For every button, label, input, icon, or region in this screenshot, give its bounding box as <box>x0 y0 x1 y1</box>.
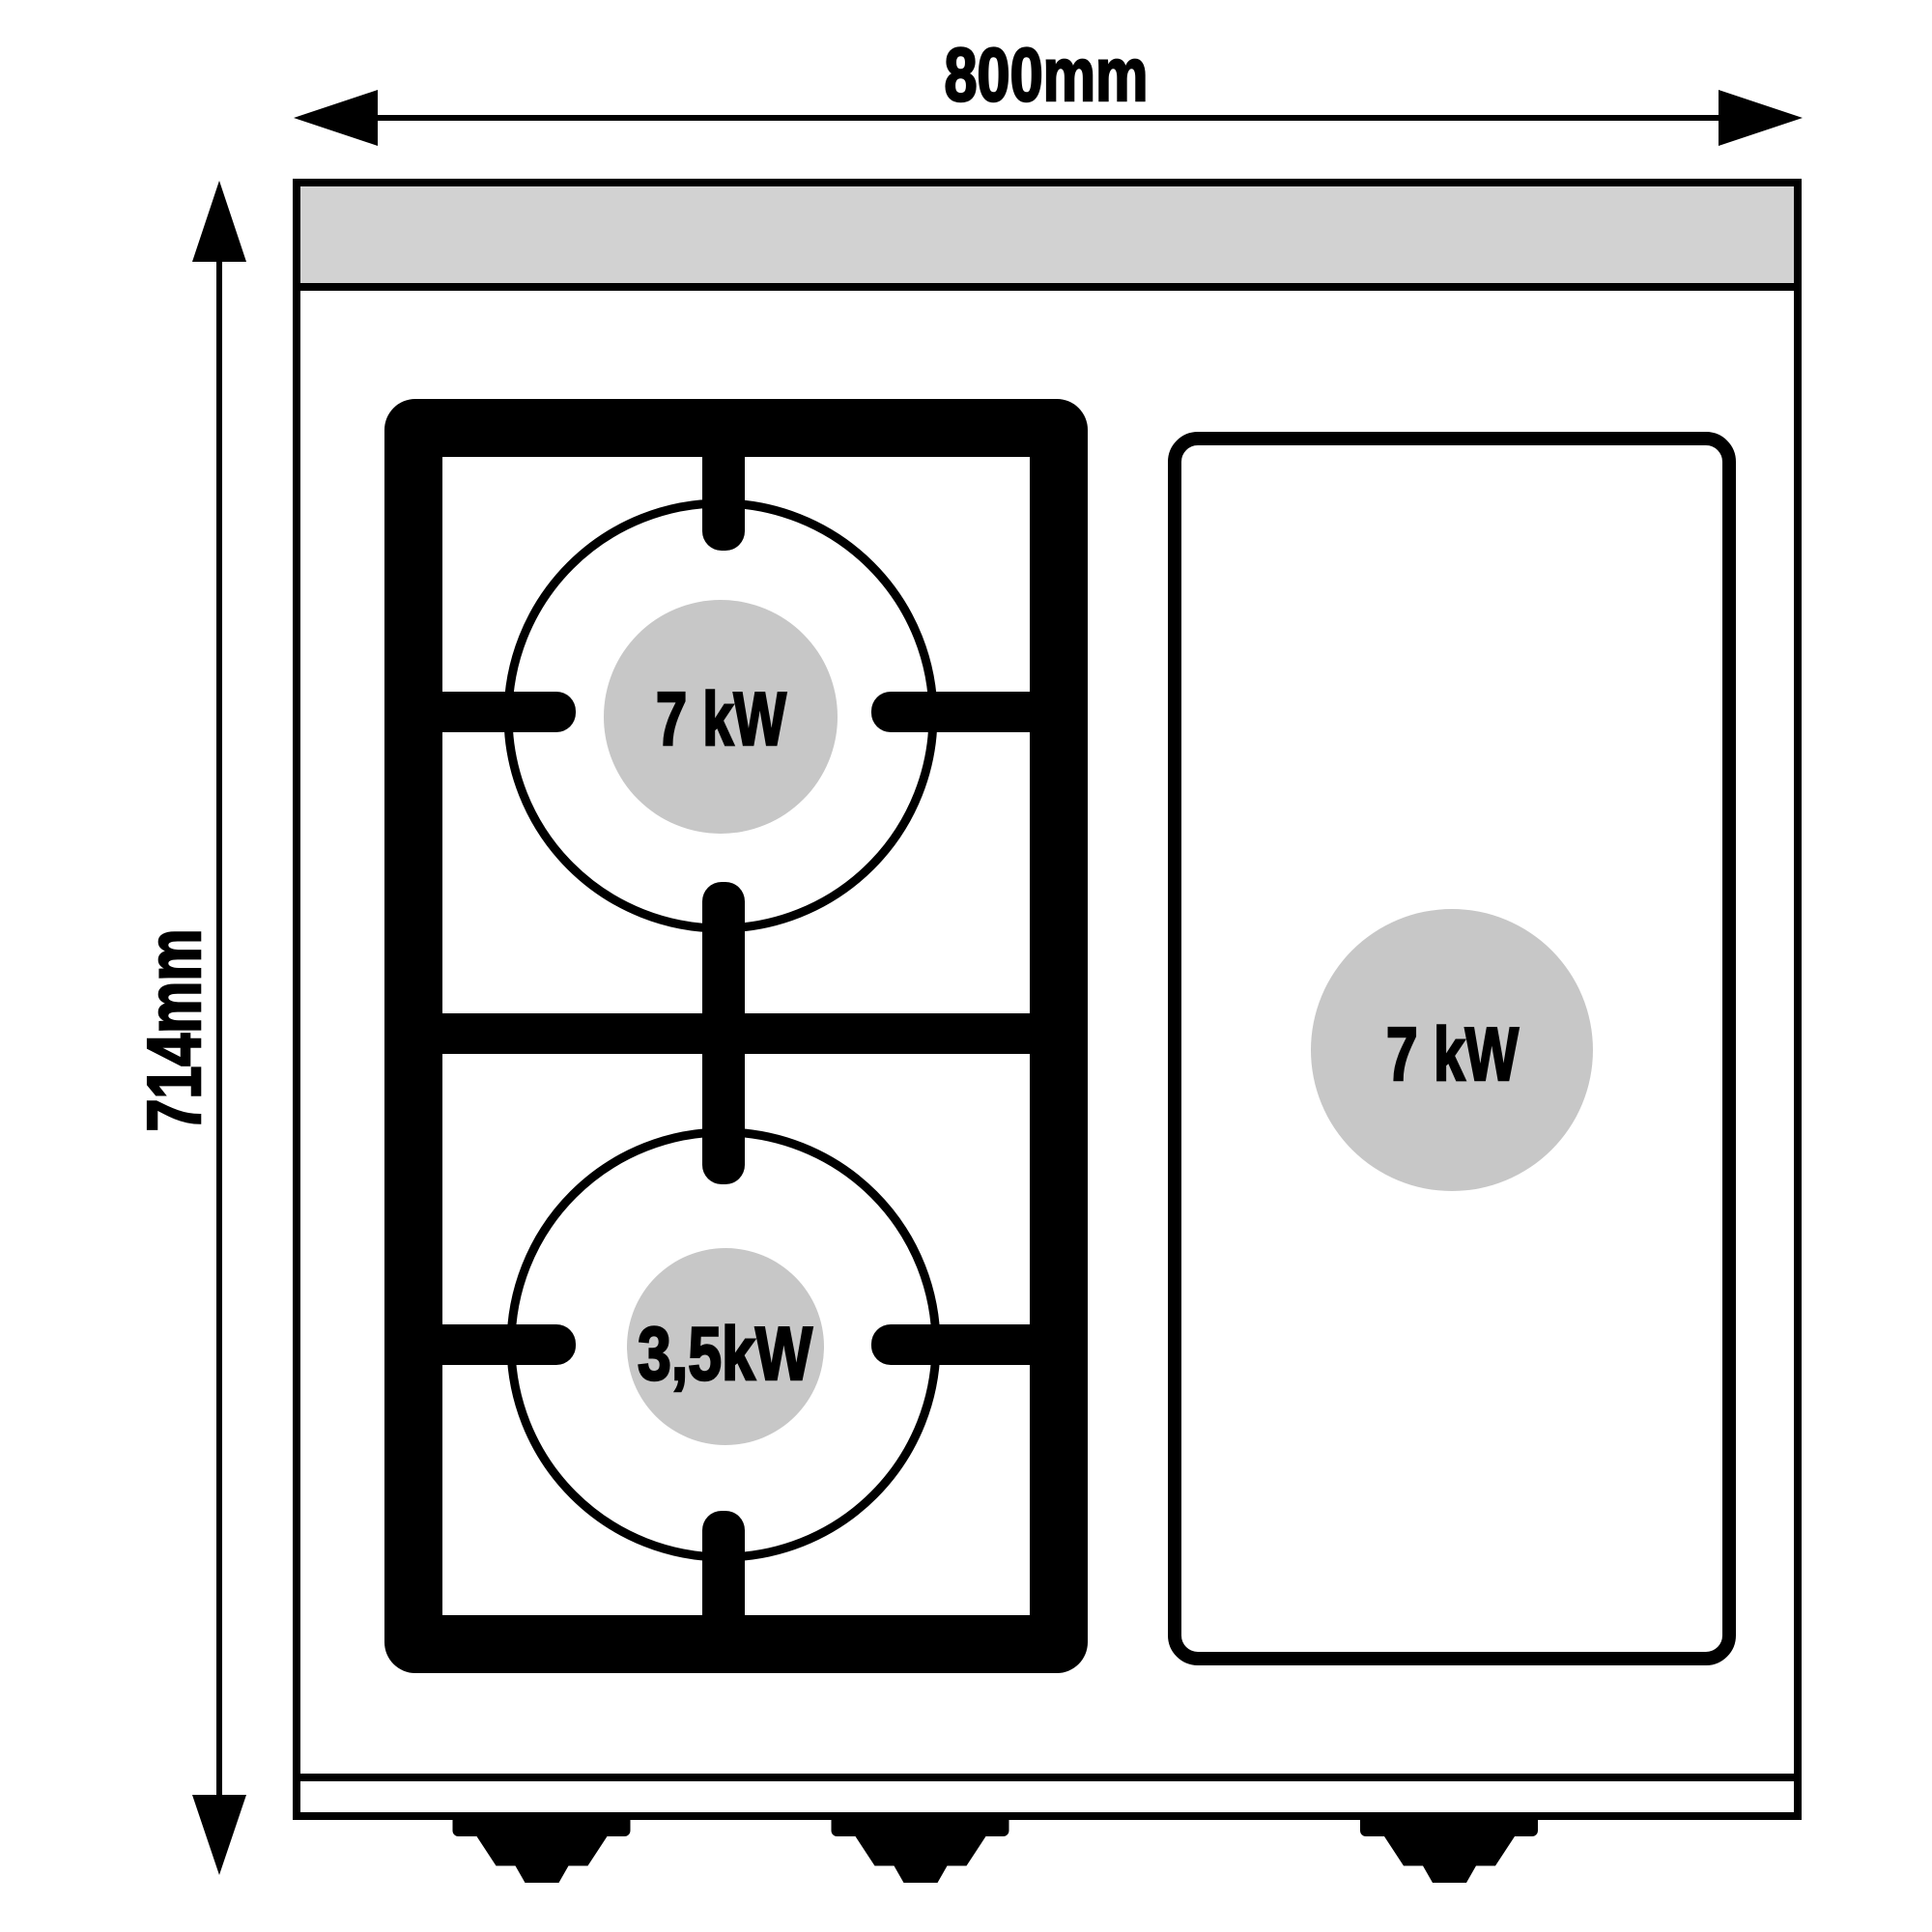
svg-text:7 kW: 7 kW <box>656 676 786 761</box>
svg-text:3,5kW: 3,5kW <box>638 1311 812 1396</box>
svg-text:7 kW: 7 kW <box>1386 1011 1519 1096</box>
svg-text:800mm: 800mm <box>945 32 1149 117</box>
svg-text:714mm: 714mm <box>131 929 216 1132</box>
